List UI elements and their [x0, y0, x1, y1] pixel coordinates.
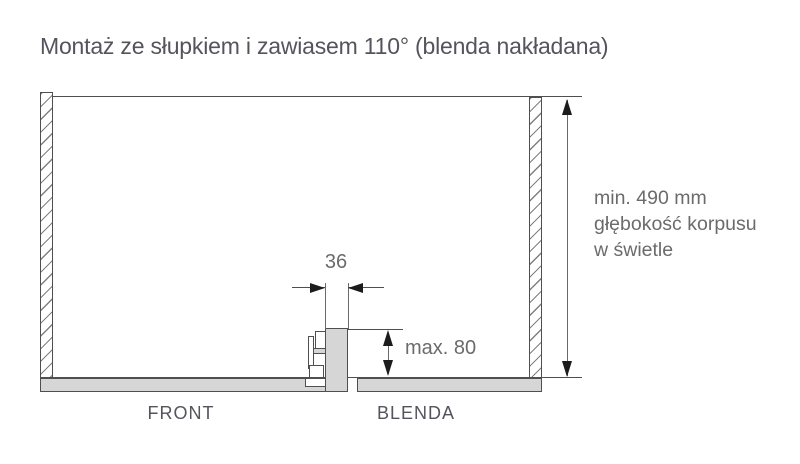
dim-depth-shaft: [567, 100, 568, 376]
dim-max80-arrow-up-icon: [383, 330, 393, 346]
depth-note-line3: w świetle: [594, 237, 757, 263]
dim-max80-label: max. 80: [405, 337, 476, 360]
cabinet-top-line: [40, 96, 582, 97]
depth-note-line2: głębokość korpusu: [594, 211, 757, 237]
hinge-arm-step: [312, 348, 326, 354]
post-slupek: [325, 328, 348, 392]
dim-36-arrow-left-icon: [348, 283, 363, 293]
hinge-arm-plate: [315, 331, 326, 349]
dim-36-arrow-right-icon: [310, 283, 325, 293]
right-side-panel-hatched: [529, 97, 542, 378]
left-side-panel-hatched: [40, 92, 53, 378]
dim-depth-arrow-up-icon: [562, 99, 572, 115]
page-title: Montaż ze słupkiem i zawiasem 110° (blen…: [40, 33, 608, 60]
dim-max80-ref-line: [348, 329, 403, 330]
hinge-mortise-notch: [305, 378, 326, 387]
front-label: FRONT: [116, 403, 246, 424]
blenda-panel: [357, 378, 542, 392]
dim-max80-arrow-down-icon: [383, 360, 393, 376]
depth-note: min. 490 mm głębokość korpusu w świetle: [594, 185, 757, 263]
hinge-boss: [309, 365, 324, 378]
dim-36-label: 36: [311, 251, 361, 274]
dim-36-ext-line-left: [325, 283, 326, 329]
blenda-label: BLENDA: [351, 403, 481, 424]
dim-depth-arrow-down-icon: [562, 361, 572, 377]
diagram-canvas: Montaż ze słupkiem i zawiasem 110° (blen…: [0, 0, 800, 464]
depth-note-line1: min. 490 mm: [594, 185, 757, 211]
front-panel: [40, 378, 348, 392]
